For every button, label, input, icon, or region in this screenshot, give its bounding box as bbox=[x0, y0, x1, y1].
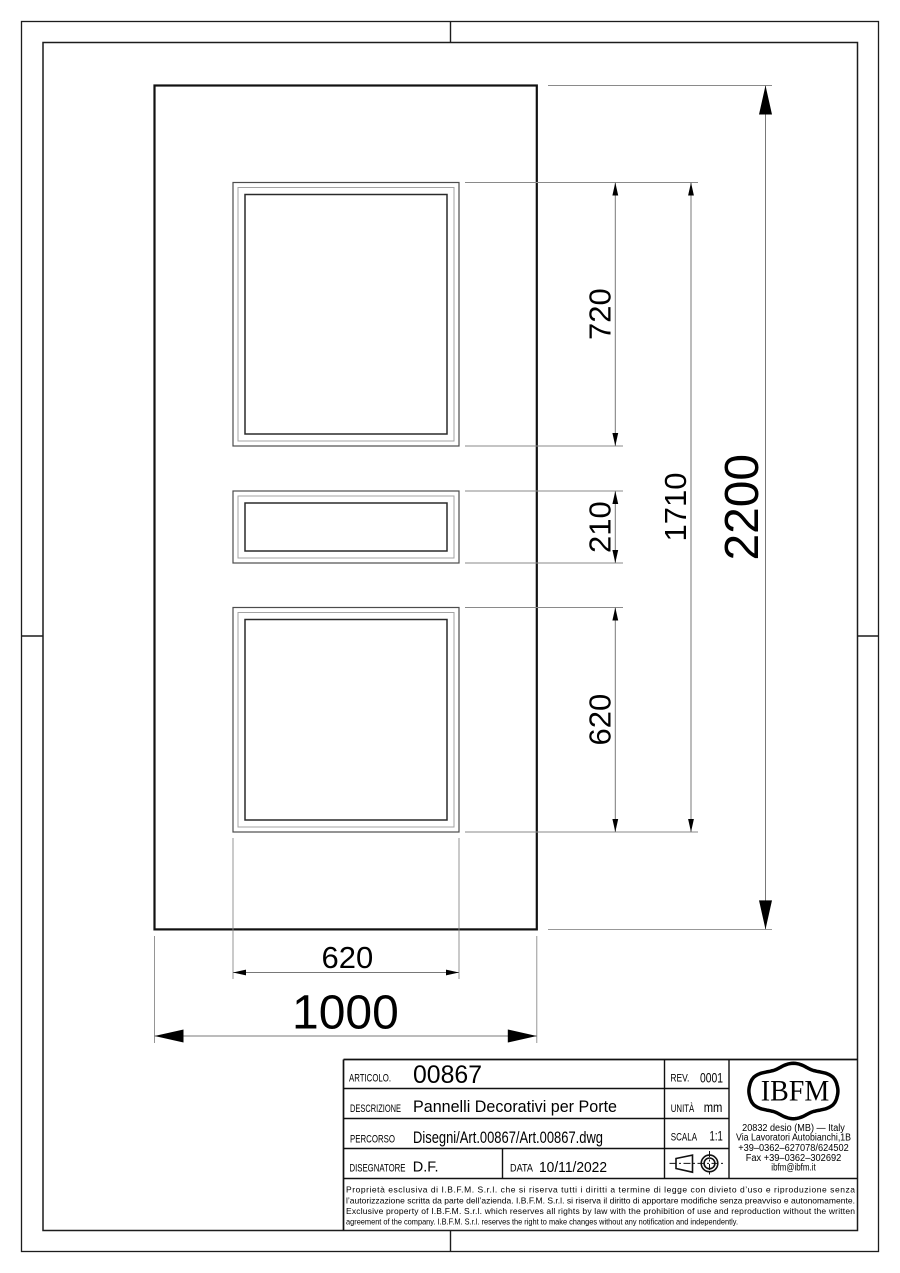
svg-text:Disegni/Art.00867/Art.00867.dw: Disegni/Art.00867/Art.00867.dwg bbox=[413, 1129, 603, 1147]
svg-text:2200: 2200 bbox=[716, 454, 769, 561]
svg-text:1:1: 1:1 bbox=[710, 1128, 723, 1144]
svg-text:10/11/2022: 10/11/2022 bbox=[539, 1160, 607, 1176]
svg-text:1000: 1000 bbox=[292, 987, 399, 1040]
svg-text:PERCORSO: PERCORSO bbox=[350, 1134, 395, 1146]
svg-text:620: 620 bbox=[322, 940, 374, 975]
svg-text:ibfm@ibfm.it: ibfm@ibfm.it bbox=[771, 1163, 816, 1174]
svg-text:Exclusive property of I.B.F.M.: Exclusive property of I.B.F.M. S.r.l. wh… bbox=[346, 1206, 855, 1216]
svg-text:Pannelli Decorativi per Porte: Pannelli Decorativi per Porte bbox=[413, 1098, 617, 1116]
svg-text:1710: 1710 bbox=[658, 473, 693, 542]
svg-text:720: 720 bbox=[583, 288, 618, 340]
svg-text:IBFM: IBFM bbox=[761, 1074, 830, 1107]
svg-text:DISEGNATORE: DISEGNATORE bbox=[350, 1163, 406, 1175]
svg-text:SCALA: SCALA bbox=[671, 1132, 698, 1144]
svg-text:210: 210 bbox=[583, 501, 618, 553]
svg-text:ARTICOLO.: ARTICOLO. bbox=[349, 1073, 391, 1085]
svg-text:UNITÀ: UNITÀ bbox=[671, 1102, 695, 1115]
svg-text:Via Lavoratori Autobianchi,1B: Via Lavoratori Autobianchi,1B bbox=[736, 1133, 851, 1144]
svg-text:REV.: REV. bbox=[670, 1073, 689, 1085]
svg-text:620: 620 bbox=[583, 694, 618, 746]
svg-text:D.F.: D.F. bbox=[413, 1160, 439, 1176]
svg-text:Proprietà esclusiva di I.B.F.M: Proprietà esclusiva di I.B.F.M. S.r.l. c… bbox=[346, 1184, 855, 1194]
svg-text:agreement of the company. I.B.: agreement of the company. I.B.F.M. S.r.l… bbox=[346, 1217, 738, 1227]
svg-text:0001: 0001 bbox=[700, 1071, 723, 1086]
svg-text:DATA: DATA bbox=[510, 1163, 534, 1175]
svg-text:00867: 00867 bbox=[413, 1061, 482, 1089]
svg-text:l’autorizzazione scritta da pa: l’autorizzazione scritta da parte dell’a… bbox=[346, 1195, 855, 1205]
svg-text:DESCRIZIONE: DESCRIZIONE bbox=[350, 1103, 401, 1115]
svg-text:mm: mm bbox=[704, 1100, 723, 1115]
